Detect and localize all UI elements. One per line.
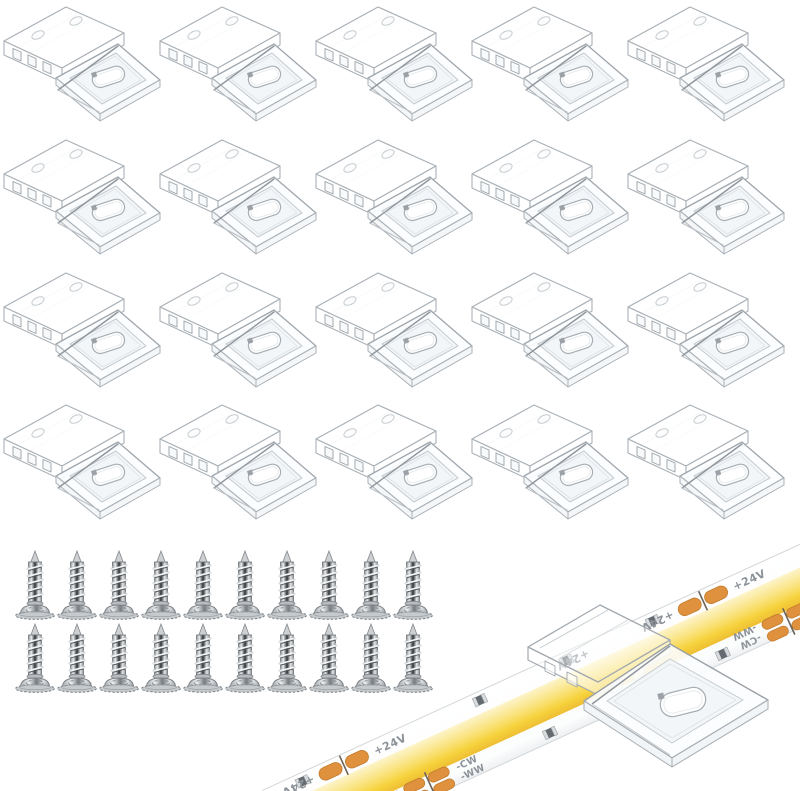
- mounting-clip: [4, 7, 160, 121]
- mounting-clip: [316, 140, 472, 254]
- product-photo-svg: +24V +24V -CW -WW -CW -WW +24V +24V +24V…: [0, 0, 800, 791]
- screw: [394, 624, 433, 692]
- screw: [184, 624, 223, 692]
- screw: [16, 551, 55, 619]
- screw: [268, 624, 307, 692]
- screw: [142, 551, 181, 619]
- mounting-clip: [316, 273, 472, 387]
- mounting-clip: [4, 273, 160, 387]
- mounting-clip: [160, 273, 316, 387]
- screw: [352, 624, 391, 692]
- mounting-clip: [472, 140, 628, 254]
- screw: [16, 624, 55, 692]
- mounting-clip: [4, 405, 160, 519]
- clips-grid: [4, 7, 784, 519]
- screw: [100, 551, 139, 619]
- mounting-clip: [160, 140, 316, 254]
- mounting-clip: [472, 405, 628, 519]
- screw: [394, 551, 433, 619]
- mounting-clip: [628, 405, 784, 519]
- mounting-clip: [472, 7, 628, 121]
- mounting-clip: [4, 140, 160, 254]
- mounting-clip: [316, 7, 472, 121]
- mounting-clip: [472, 273, 628, 387]
- mounting-clip: [628, 140, 784, 254]
- screw: [226, 624, 265, 692]
- screws-grid: [16, 551, 433, 692]
- screw: [310, 624, 349, 692]
- mounting-clip: [160, 7, 316, 121]
- mounting-clip: [316, 405, 472, 519]
- screw: [268, 551, 307, 619]
- screw: [352, 551, 391, 619]
- mounting-clip: [628, 7, 784, 121]
- product-photo: +24V +24V -CW -WW -CW -WW +24V +24V +24V…: [0, 0, 800, 791]
- screw: [226, 551, 265, 619]
- mounting-clip: [628, 273, 784, 387]
- screw: [100, 624, 139, 692]
- screw: [310, 551, 349, 619]
- screw: [142, 624, 181, 692]
- mounting-clip: [160, 405, 316, 519]
- screw: [184, 551, 223, 619]
- screw: [58, 624, 97, 692]
- screw: [58, 551, 97, 619]
